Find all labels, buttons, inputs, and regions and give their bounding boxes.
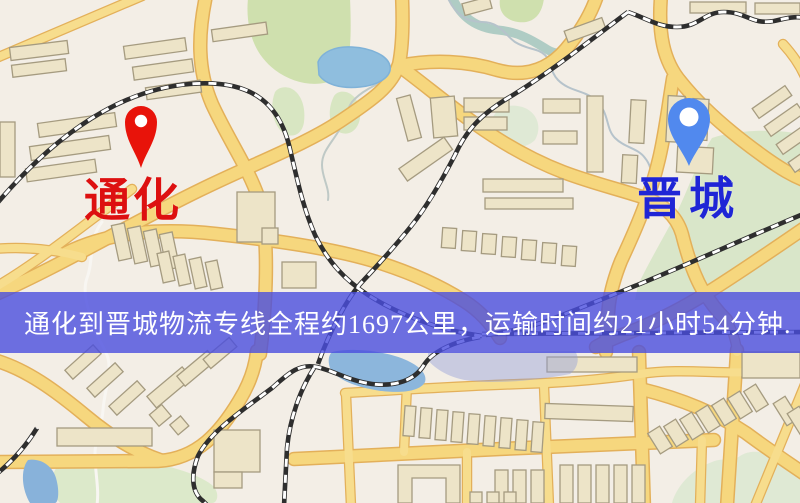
- logistics-map-image: 通化 晋城 通化到晋城物流专线全程约1697公里，运输时间约21小时54分钟.: [0, 0, 800, 503]
- route-info-banner: 通化到晋城物流专线全程约1697公里，运输时间约21小时54分钟.: [0, 292, 800, 353]
- destination-pin-hole: [680, 108, 699, 127]
- origin-pin-hole: [135, 115, 147, 127]
- origin-city-label: 通化: [84, 178, 182, 224]
- map-canvas: [0, 0, 800, 503]
- route-info-text: 通化到晋城物流专线全程约1697公里，运输时间约21小时54分钟.: [24, 304, 792, 341]
- destination-city-label: 晋城: [637, 177, 741, 222]
